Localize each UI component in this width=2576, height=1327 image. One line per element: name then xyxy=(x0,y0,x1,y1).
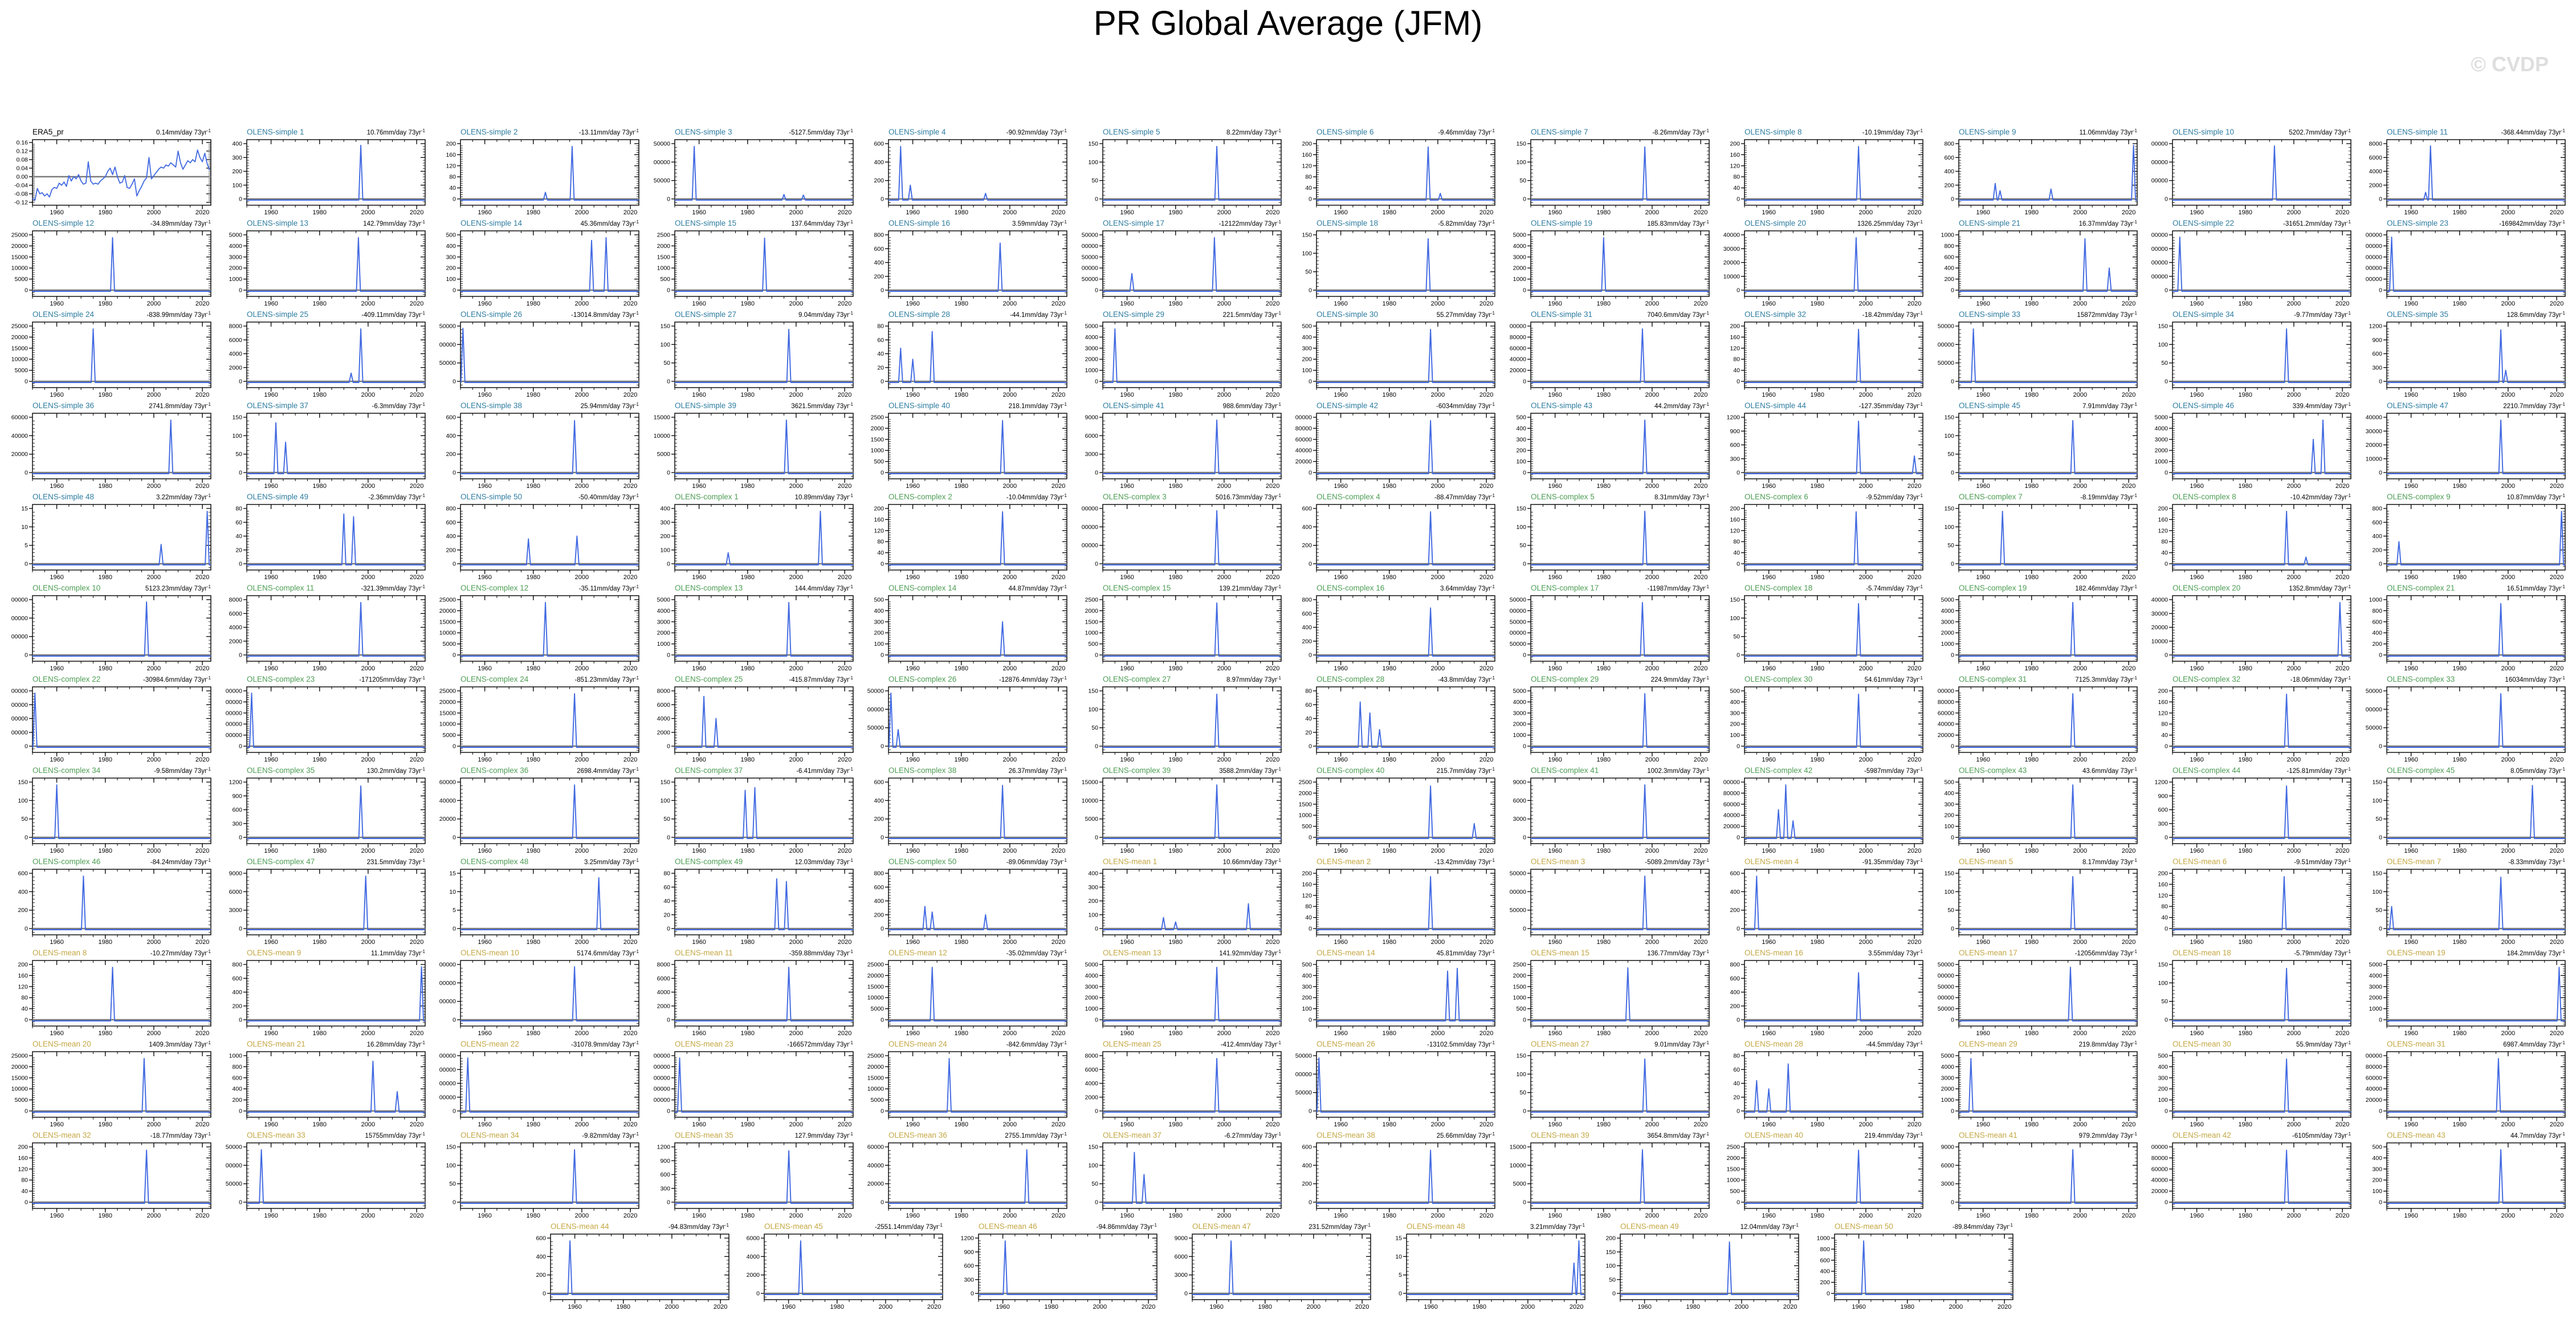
x-tick-label: 2000 xyxy=(1003,939,1017,946)
x-tick-label: 2000 xyxy=(1859,848,1873,854)
series-line xyxy=(247,1061,425,1112)
panel-title: OLENS-mean 3 xyxy=(1531,857,1585,866)
panel-title: OLENS-complex 15 xyxy=(1103,584,1171,592)
panel-title: OLENS-mean 15 xyxy=(1531,949,1589,957)
y-tick-label: 100000 xyxy=(1510,889,1526,895)
series-line xyxy=(1316,968,1495,1021)
y-tick-label: 0 xyxy=(25,561,28,568)
y-tick-label: 1000 xyxy=(1941,232,1954,239)
series-line xyxy=(1959,145,2137,200)
x-tick-label: 2000 xyxy=(2287,1212,2301,1219)
x-tick-label: 2020 xyxy=(1907,1030,1921,1037)
y-tick-label: 600 xyxy=(874,246,884,253)
x-tick-label: 1980 xyxy=(99,939,112,946)
x-tick-label: 2020 xyxy=(1693,483,1707,490)
y-tick-label: 200 xyxy=(1730,907,1740,914)
y-tick-label: 500 xyxy=(2372,1144,2382,1151)
panel-trend-value: -8.26mm/day 73yr-1 xyxy=(1652,128,1709,136)
panel-title: OLENS-mean 21 xyxy=(247,1040,305,1048)
x-tick-label: 2020 xyxy=(1907,665,1921,672)
x-tick-label: 1980 xyxy=(1811,848,1824,854)
series-line xyxy=(1316,786,1495,838)
x-tick-label: 1980 xyxy=(1383,1121,1396,1128)
x-tick-label: 2000 xyxy=(575,848,589,854)
panel-chart: OLENS-simple 6-9.46mm/day 73yr-119601980… xyxy=(1295,127,1509,219)
x-tick-label: 2020 xyxy=(409,483,423,490)
y-tick-label: 2000 xyxy=(1085,995,1098,1002)
panel-chart: OLENS-mean 34-9.82mm/day 73yr-1196019802… xyxy=(439,1130,653,1222)
y-tick-label: 40 xyxy=(1305,185,1312,192)
y-tick-label: 400 xyxy=(1944,168,1954,175)
series-line xyxy=(1959,1059,2137,1112)
x-tick-label: 1960 xyxy=(1120,756,1134,763)
series-line xyxy=(888,146,1067,200)
x-tick-label: 1960 xyxy=(2190,665,2203,672)
x-tick-label: 1960 xyxy=(1762,1212,1775,1219)
panel: OLENS-complex 58.31mm/day 73yr-119601980… xyxy=(1510,491,1723,584)
x-tick-label: 2020 xyxy=(1051,209,1065,216)
panel-chart: ERA5_pr0.14mm/day 73yr-11960198020002020… xyxy=(11,127,225,219)
panel-title: OLENS-complex 10 xyxy=(32,584,100,592)
y-tick-label: 150 xyxy=(660,779,670,786)
panel: OLENS-mean 2-13.42mm/day 73yr-1196019802… xyxy=(1295,856,1509,949)
panel-chart: OLENS-complex 26-12876.4mm/day 73yr-1196… xyxy=(867,674,1081,766)
panel-title: OLENS-complex 21 xyxy=(2387,584,2455,592)
x-tick-label: 2000 xyxy=(147,756,161,763)
x-tick-label: 2000 xyxy=(2287,1030,2301,1037)
y-tick-label: 0 xyxy=(1737,835,1740,841)
x-tick-label: 2000 xyxy=(1431,939,1445,946)
panel-trend-value: 10.87mm/day 73yr-1 xyxy=(2506,493,2565,501)
x-tick-label: 1960 xyxy=(1120,209,1134,216)
panel-title: OLENS-simple 43 xyxy=(1531,401,1592,410)
y-tick-label: 40 xyxy=(1733,185,1740,192)
y-tick-label: 600 xyxy=(660,1171,670,1178)
y-tick-label: 200 xyxy=(2158,506,2168,512)
y-tick-label: 8000 xyxy=(657,962,670,968)
x-tick-label: 2000 xyxy=(1859,483,1873,490)
y-tick-label: 2000 xyxy=(229,265,242,272)
x-tick-label: 1960 xyxy=(1120,939,1134,946)
series-line xyxy=(888,243,1067,292)
y-tick-label: 25000 xyxy=(11,323,28,330)
panel-chart: OLENS-complex 24-851.23mm/day 73yr-11960… xyxy=(439,674,653,766)
panel: OLENS-simple 58.22mm/day 73yr-1196019802… xyxy=(1082,127,1295,219)
x-tick-label: 1960 xyxy=(478,665,491,672)
panel-chart: OLENS-mean 41979.2mm/day 73yr-1196019802… xyxy=(1938,1130,2151,1222)
y-tick-label: 80 xyxy=(2161,539,2168,546)
y-tick-label: 20000 xyxy=(439,608,456,614)
series-line xyxy=(460,421,639,474)
series-line xyxy=(2387,694,2565,747)
y-tick-label: 40 xyxy=(1305,715,1312,722)
panel-trend-value: 5202.7mm/day 73yr-1 xyxy=(2289,128,2351,136)
panel: OLENS-simple 29221.5mm/day 73yr-11960198… xyxy=(1082,309,1295,401)
y-tick-label: 25000 xyxy=(11,1053,28,1060)
panel: OLENS-mean 41979.2mm/day 73yr-1196019802… xyxy=(1938,1130,2151,1222)
panel: OLENS-mean 110.66mm/day 73yr-11960198020… xyxy=(1082,856,1295,949)
panel-chart: OLENS-mean 2-13.42mm/day 73yr-1196019802… xyxy=(1295,856,1509,949)
x-tick-label: 2000 xyxy=(2501,1121,2514,1128)
y-tick-label: 100000 xyxy=(11,633,28,640)
y-tick-label: 300 xyxy=(874,618,884,625)
y-tick-label: 500000 xyxy=(654,1097,670,1104)
x-tick-label: 1980 xyxy=(2239,756,2252,763)
x-tick-label: 2020 xyxy=(623,1030,637,1037)
y-tick-label: 80 xyxy=(21,995,28,1002)
x-tick-label: 2020 xyxy=(1907,300,1921,307)
x-tick-label: 1980 xyxy=(1472,1304,1486,1310)
x-tick-label: 2000 xyxy=(1431,483,1445,490)
y-tick-label: 200000 xyxy=(1938,972,1954,979)
panel-chart: OLENS-complex 13144.4mm/day 73yr-1196019… xyxy=(654,583,867,675)
y-tick-label: 80000 xyxy=(1938,699,1954,706)
panel-title: OLENS-simple 30 xyxy=(1316,310,1378,319)
panel-title: OLENS-simple 14 xyxy=(460,219,523,227)
panel-chart: OLENS-mean 25-412.4mm/day 73yr-119601980… xyxy=(1082,1039,1295,1131)
panel-chart: OLENS-simple 18-5.82mm/day 73yr-11960198… xyxy=(1295,218,1509,310)
panel: OLENS-complex 23-171205mm/day 73yr-11960… xyxy=(226,674,439,766)
y-tick-label: 100000 xyxy=(439,341,456,348)
y-tick-label: 0 xyxy=(1309,652,1312,659)
x-tick-label: 1980 xyxy=(312,939,326,946)
x-tick-label: 1960 xyxy=(1334,939,1347,946)
y-tick-label: 80000 xyxy=(2366,1064,2382,1070)
x-tick-label: 2000 xyxy=(575,300,589,307)
y-tick-label: 500 xyxy=(660,276,670,283)
y-tick-label: 160 xyxy=(18,1155,28,1162)
y-tick-label: 160 xyxy=(2158,699,2168,706)
x-tick-label: 1980 xyxy=(740,392,754,398)
x-tick-label: 2020 xyxy=(1693,392,1707,398)
y-tick-label: 2000000 xyxy=(2366,243,2382,250)
panel-trend-value: -125.81mm/day 73yr-1 xyxy=(2286,767,2351,775)
panel: OLENS-mean 28-44.5mm/day 73yr-1196019802… xyxy=(1723,1039,1937,1131)
panel-chart: OLENS-simple 911.06mm/day 73yr-119601980… xyxy=(1938,127,2151,219)
panel: OLENS-complex 28-43.8mm/day 73yr-1196019… xyxy=(1295,674,1509,766)
panel: OLENS-complex 35130.2mm/day 73yr-1196019… xyxy=(226,765,439,857)
panel: OLENS-mean 201409.3mm/day 73yr-119601980… xyxy=(11,1039,225,1131)
y-tick-label: 2000 xyxy=(229,364,242,371)
panel: OLENS-simple 24-838.99mm/day 73yr-119601… xyxy=(11,309,225,401)
x-tick-label: 2000 xyxy=(361,1212,374,1219)
x-tick-label: 1960 xyxy=(2190,939,2203,946)
x-tick-label: 2000 xyxy=(1217,939,1230,946)
y-tick-label: 25000 xyxy=(867,1053,884,1060)
y-tick-label: 60 xyxy=(1305,702,1312,709)
y-tick-label: 150 xyxy=(446,1144,456,1151)
y-tick-label: 0 xyxy=(1951,652,1954,659)
panel-title: OLENS-mean 29 xyxy=(1959,1040,2017,1048)
x-tick-label: 2000 xyxy=(1003,756,1017,763)
y-tick-label: 200000 xyxy=(439,1080,456,1087)
x-tick-label: 1960 xyxy=(1762,209,1775,216)
x-tick-label: 1960 xyxy=(1976,1030,1990,1037)
x-tick-label: 2020 xyxy=(2121,1121,2135,1128)
panel-title: OLENS-simple 16 xyxy=(888,219,950,227)
panel-trend-value: 221.5mm/day 73yr-1 xyxy=(1222,311,1281,319)
x-tick-label: 1980 xyxy=(2452,483,2466,490)
panel: OLENS-complex 2116.51mm/day 73yr-1196019… xyxy=(2366,583,2576,675)
panel-chart: OLENS-complex 2116.51mm/day 73yr-1196019… xyxy=(2366,583,2576,675)
x-tick-label: 2000 xyxy=(2287,756,2301,763)
y-tick-label: 1200 xyxy=(657,1144,670,1151)
panel-trend-value: -5.79mm/day 73yr-1 xyxy=(2294,949,2351,957)
panel-chart: OLENS-complex 19182.46mm/day 73yr-119601… xyxy=(1938,583,2151,675)
x-tick-label: 1980 xyxy=(312,574,326,581)
panel-trend-value: 5123.23mm/day 73yr-1 xyxy=(145,584,211,592)
panel-trend-value: 26.37mm/day 73yr-1 xyxy=(1009,767,1067,775)
x-tick-label: 1960 xyxy=(906,209,919,216)
series-line xyxy=(675,788,853,838)
x-tick-label: 2000 xyxy=(1521,1304,1534,1310)
x-tick-label: 1960 xyxy=(1548,756,1562,763)
series-line xyxy=(2387,604,2565,656)
x-tick-label: 1980 xyxy=(1596,483,1610,490)
x-tick-label: 1980 xyxy=(955,1212,968,1219)
x-tick-label: 2000 xyxy=(2073,939,2086,946)
y-tick-label: 0 xyxy=(1309,1108,1312,1115)
x-tick-label: 1980 xyxy=(527,756,540,763)
y-tick-label: 5000 xyxy=(871,1006,885,1012)
y-tick-label: 150 xyxy=(2372,779,2382,786)
x-tick-label: 1980 xyxy=(955,483,968,490)
panel-trend-value: -12122mm/day 73yr-1 xyxy=(1218,219,1281,227)
panel-trend-value: 10.66mm/day 73yr-1 xyxy=(1222,858,1281,866)
x-tick-label: 2020 xyxy=(1265,1212,1279,1219)
x-tick-label: 2000 xyxy=(2287,574,2301,581)
y-tick-label: 20000 xyxy=(11,243,28,250)
x-tick-label: 1960 xyxy=(1334,1030,1347,1037)
x-tick-label: 2000 xyxy=(575,1121,589,1128)
panel: OLENS-simple 163.59mm/day 73yr-119601980… xyxy=(867,218,1081,310)
panel-trend-value: -321.39mm/day 73yr-1 xyxy=(361,584,425,592)
y-tick-label: 900 xyxy=(2158,793,2168,800)
y-tick-label: 0 xyxy=(1309,1017,1312,1024)
y-tick-label: 0 xyxy=(2379,652,2382,659)
y-tick-label: 4000 xyxy=(2369,168,2382,175)
y-tick-label: 10000 xyxy=(439,630,456,637)
series-line xyxy=(1959,1150,2137,1203)
series-line xyxy=(2173,968,2351,1021)
series-line xyxy=(247,693,425,747)
x-tick-label: 1980 xyxy=(1596,1030,1610,1037)
series-line xyxy=(1103,329,1281,382)
x-tick-label: 2020 xyxy=(2549,209,2563,216)
panel-title: OLENS-simple 48 xyxy=(32,492,94,501)
y-tick-label: 300 xyxy=(2372,364,2382,371)
x-tick-label: 1960 xyxy=(264,1121,278,1128)
panel-title: OLENS-mean 8 xyxy=(32,949,87,957)
x-tick-label: 1980 xyxy=(312,1212,326,1219)
x-tick-label: 1960 xyxy=(50,483,63,490)
x-tick-label: 1980 xyxy=(2024,756,2038,763)
x-tick-label: 2020 xyxy=(623,1121,637,1128)
y-tick-label: 1000 xyxy=(1941,1097,1954,1104)
y-tick-label: 400000 xyxy=(2151,232,2168,239)
panel-title: OLENS-mean 23 xyxy=(675,1040,733,1048)
x-tick-label: 2020 xyxy=(1907,1121,1921,1128)
y-tick-label: 50000 xyxy=(1510,641,1526,648)
x-tick-label: 2020 xyxy=(837,665,851,672)
y-tick-label: 100 xyxy=(1088,1162,1098,1169)
x-tick-label: 2020 xyxy=(1265,665,1279,672)
x-tick-label: 2000 xyxy=(1859,939,1873,946)
panel-title: OLENS-complex 19 xyxy=(1959,584,2027,592)
panel-trend-value: 16034mm/day 73yr-1 xyxy=(2505,675,2565,683)
x-tick-label: 1960 xyxy=(50,209,63,216)
x-tick-label: 1960 xyxy=(264,848,278,854)
x-tick-label: 2000 xyxy=(1217,848,1230,854)
x-tick-label: 2020 xyxy=(623,939,637,946)
x-tick-label: 2020 xyxy=(1265,574,1279,581)
y-tick-label: 200 xyxy=(1944,812,1954,819)
y-tick-label: 1000000 xyxy=(654,1086,670,1093)
series-line xyxy=(32,876,211,930)
x-tick-label: 2000 xyxy=(1859,665,1873,672)
panel-title: OLENS-simple 3 xyxy=(675,128,732,136)
y-tick-label: 120 xyxy=(1730,162,1740,169)
y-tick-label: 600 xyxy=(874,141,884,148)
x-tick-label: 2020 xyxy=(195,1212,209,1219)
panel-chart: OLENS-complex 34-9.58mm/day 73yr-1196019… xyxy=(11,765,225,857)
y-tick-label: 0 xyxy=(667,287,670,294)
panel-title: OLENS-complex 37 xyxy=(675,766,743,775)
panel-title: OLENS-complex 32 xyxy=(2173,675,2240,683)
y-tick-label: 100000 xyxy=(2366,706,2382,713)
y-tick-label: 10000 xyxy=(439,721,456,728)
x-tick-label: 1960 xyxy=(1334,574,1347,581)
y-tick-label: 800 xyxy=(446,506,456,512)
x-tick-label: 2020 xyxy=(2121,392,2135,398)
x-tick-label: 1960 xyxy=(1976,574,1990,581)
panel: OLENS-complex 11-321.39mm/day 73yr-11960… xyxy=(226,583,439,675)
y-tick-label: 600 xyxy=(1944,254,1954,260)
x-tick-label: 1980 xyxy=(1044,1304,1058,1310)
y-tick-label: 5000 xyxy=(443,732,456,739)
panel-title: OLENS-complex 8 xyxy=(2173,492,2236,501)
x-tick-label: 2000 xyxy=(1859,756,1873,763)
x-tick-label: 2020 xyxy=(1479,756,1493,763)
series-line xyxy=(2173,420,2351,474)
x-tick-label: 1980 xyxy=(2024,209,2038,216)
series-line xyxy=(32,693,211,747)
x-tick-label: 2020 xyxy=(623,300,637,307)
y-tick-label: 40 xyxy=(21,1188,28,1195)
x-tick-label: 2020 xyxy=(1051,483,1065,490)
panel-chart: OLENS-mean 46-94.86mm/day 73yr-119601980… xyxy=(957,1221,1171,1313)
y-tick-label: 0 xyxy=(1095,196,1098,203)
series-line xyxy=(888,967,1067,1021)
panel-title: OLENS-simple 50 xyxy=(460,492,522,501)
y-tick-label: 400 xyxy=(446,433,456,439)
panel-chart: OLENS-complex 1444.87mm/day 73yr-1196019… xyxy=(867,583,1081,675)
x-tick-label: 2020 xyxy=(1998,1304,2011,1310)
panel: OLENS-simple 37-6.3mm/day 73yr-119601980… xyxy=(226,400,439,492)
y-tick-label: 40000 xyxy=(1723,812,1740,819)
panel: OLENS-mean 105174.6mm/day 73yr-119601980… xyxy=(439,947,653,1040)
panel-trend-value: 15755mm/day 73yr-1 xyxy=(365,1131,425,1139)
panel-trend-value: -13014.8mm/day 73yr-1 xyxy=(571,311,639,319)
y-tick-label: 8000 xyxy=(657,688,670,695)
y-tick-label: 40000 xyxy=(2151,1177,2168,1184)
series-line xyxy=(1316,239,1495,291)
panel-title: OLENS-mean 31 xyxy=(2387,1040,2445,1048)
x-tick-label: 2020 xyxy=(623,848,637,854)
panel-trend-value: 979.2mm/day 73yr-1 xyxy=(2078,1131,2137,1139)
panel-title: OLENS-mean 36 xyxy=(888,1131,947,1139)
x-tick-label: 2020 xyxy=(1907,848,1921,854)
x-tick-label: 2020 xyxy=(1479,848,1493,854)
x-tick-label: 1960 xyxy=(906,756,919,763)
y-tick-label: 200000 xyxy=(1510,608,1526,614)
panel-title: OLENS-simple 42 xyxy=(1316,401,1378,410)
x-tick-label: 2000 xyxy=(789,574,802,581)
y-tick-label: 0 xyxy=(453,1108,456,1115)
series-line xyxy=(888,622,1067,656)
panel-chart: OLENS-mean 6-9.51mm/day 73yr-11960198020… xyxy=(2151,856,2365,949)
y-tick-label: 20000 xyxy=(439,699,456,706)
x-tick-label: 2000 xyxy=(361,939,374,946)
y-tick-label: 600 xyxy=(1730,870,1740,877)
panel-trend-value: 2741.8mm/day 73yr-1 xyxy=(149,402,211,410)
series-line xyxy=(32,1150,211,1203)
y-tick-label: 0 xyxy=(1309,287,1312,294)
y-tick-label: 400 xyxy=(874,898,884,905)
y-tick-label: 5000 xyxy=(1941,1053,1954,1060)
y-tick-label: 20000 xyxy=(867,1064,884,1070)
y-tick-label: 10000 xyxy=(654,433,670,439)
panel: OLENS-simple 25-409.11mm/day 73yr-119601… xyxy=(226,309,439,401)
series-line xyxy=(1959,694,2137,747)
y-tick-label: 0 xyxy=(667,1017,670,1024)
x-tick-label: 1960 xyxy=(50,756,63,763)
series-line xyxy=(1531,1059,1709,1112)
panel-chart: OLENS-mean 11-359.88mm/day 73yr-11960198… xyxy=(654,947,867,1040)
x-tick-label: 1980 xyxy=(1383,756,1396,763)
y-tick-label: 0 xyxy=(1612,1291,1616,1297)
panel-trend-value: 44.7mm/day 73yr-1 xyxy=(2510,1131,2566,1139)
panel-chart: OLENS-mean 911.1mm/day 73yr-119601980200… xyxy=(226,947,439,1040)
y-tick-label: 600 xyxy=(1730,442,1740,449)
panel-title: OLENS-simple 24 xyxy=(32,310,95,319)
y-tick-label: 15 xyxy=(449,870,456,877)
panel-title: OLENS-simple 13 xyxy=(247,219,308,227)
y-tick-label: 6000 xyxy=(1085,1067,1098,1073)
panel-chart: OLENS-complex 35016.73mm/day 73yr-119601… xyxy=(1082,491,1295,584)
panel-title: OLENS-simple 44 xyxy=(1744,401,1807,410)
panel-chart: OLENS-mean 4344.7mm/day 73yr-11960198020… xyxy=(2366,1130,2576,1222)
y-tick-label: 1200 xyxy=(960,1235,974,1242)
x-tick-label: 2000 xyxy=(2287,665,2301,672)
x-tick-label: 2020 xyxy=(1693,665,1707,672)
x-tick-label: 2020 xyxy=(1479,1212,1493,1219)
x-tick-label: 1960 xyxy=(2404,756,2418,763)
y-tick-label: 8000 xyxy=(2369,141,2382,148)
x-tick-label: 1960 xyxy=(906,665,919,672)
x-tick-label: 2020 xyxy=(2121,209,2135,216)
y-tick-label: 0 xyxy=(2379,470,2382,477)
panel-trend-value: 43.6mm/day 73yr-1 xyxy=(2082,767,2138,775)
series-line xyxy=(460,238,639,291)
panel-title: OLENS-simple 6 xyxy=(1316,128,1374,136)
panel-chart: OLENS-complex 393588.2mm/day 73yr-119601… xyxy=(1082,765,1295,857)
panel-title: OLENS-mean 47 xyxy=(1192,1222,1251,1231)
panel-title: OLENS-complex 7 xyxy=(1959,492,2023,501)
series-line xyxy=(1744,1064,1923,1113)
x-tick-label: 2020 xyxy=(1051,1121,1065,1128)
x-tick-label: 1980 xyxy=(2452,574,2466,581)
